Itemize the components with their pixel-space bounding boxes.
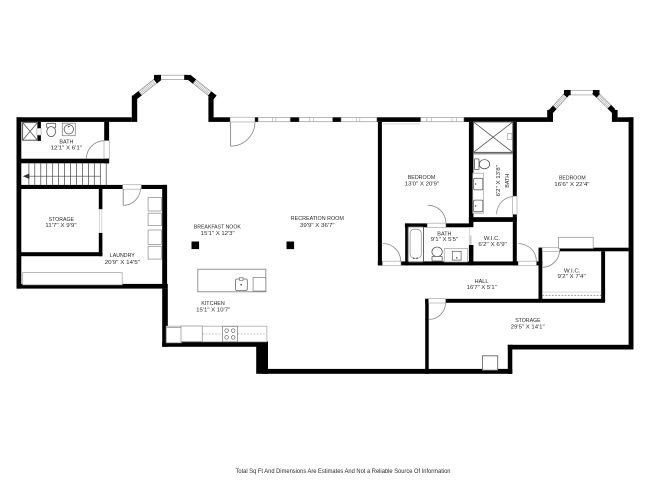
svg-text:6'2" X 6'9": 6'2" X 6'9" xyxy=(478,242,506,248)
svg-text:15'1" X 10'7": 15'1" X 10'7" xyxy=(196,307,230,313)
svg-text:Total Sq Ft And Dimensions Are: Total Sq Ft And Dimensions Are Estimates… xyxy=(236,468,451,475)
svg-text:29'5" X 14'1": 29'5" X 14'1" xyxy=(511,325,545,331)
svg-text:16'7" X 5'1": 16'7" X 5'1" xyxy=(467,285,497,291)
svg-text:15'1" X 12'3": 15'1" X 12'3" xyxy=(201,231,235,237)
svg-text:6'2" X 13'8": 6'2" X 13'8" xyxy=(496,165,502,196)
svg-text:39'9" X 36'7": 39'9" X 36'7" xyxy=(300,223,335,229)
svg-text:STORAGE: STORAGE xyxy=(49,217,74,223)
svg-text:12'1" X 6'1": 12'1" X 6'1" xyxy=(51,146,82,152)
svg-text:11'7" X 9'9": 11'7" X 9'9" xyxy=(45,223,76,229)
svg-text:BEDROOM: BEDROOM xyxy=(559,176,586,182)
svg-text:13'0" X 20'9": 13'0" X 20'9" xyxy=(405,182,439,188)
svg-text:W.I.C.: W.I.C. xyxy=(484,236,500,242)
svg-text:LAUNDRY: LAUNDRY xyxy=(110,253,135,259)
svg-text:20'9" X 14'5": 20'9" X 14'5" xyxy=(105,260,140,266)
svg-text:KITCHEN: KITCHEN xyxy=(201,301,225,307)
svg-text:RECREATION ROOM: RECREATION ROOM xyxy=(291,216,344,222)
svg-text:9'2" X 7'4": 9'2" X 7'4" xyxy=(558,274,586,280)
svg-text:STORAGE: STORAGE xyxy=(515,318,540,324)
svg-text:9'1" X 5'5": 9'1" X 5'5" xyxy=(431,237,458,243)
svg-text:BREAKFAST NOOK: BREAKFAST NOOK xyxy=(194,224,241,230)
svg-text:16'6" X 22'4": 16'6" X 22'4" xyxy=(554,182,589,188)
svg-text:BATH: BATH xyxy=(505,174,511,188)
svg-text:BEDROOM: BEDROOM xyxy=(408,175,436,181)
